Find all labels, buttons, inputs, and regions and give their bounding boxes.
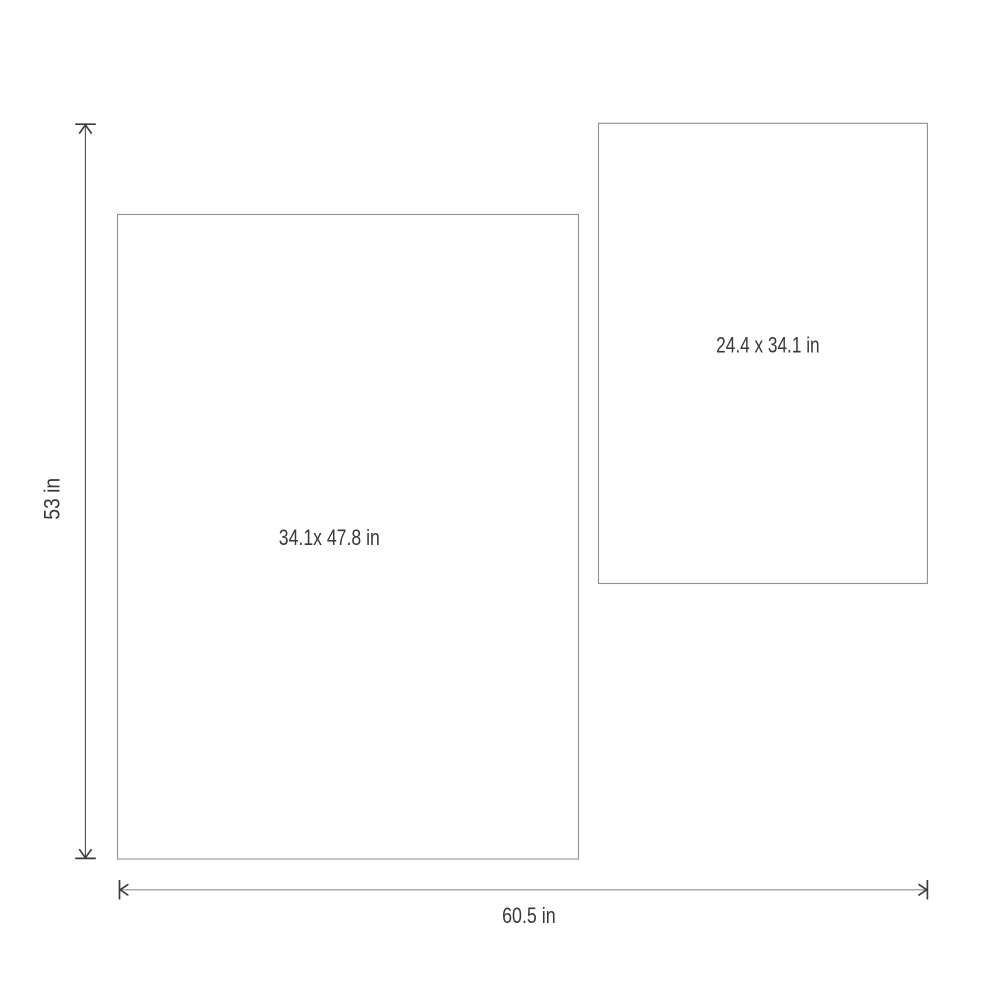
svg-text:53 in: 53 in xyxy=(39,478,64,520)
svg-text:60.5 in: 60.5 in xyxy=(502,903,556,928)
svg-text:24.4 x 34.1 in: 24.4 x 34.1 in xyxy=(716,333,820,358)
svg-text:34.1x 47.8 in: 34.1x 47.8 in xyxy=(279,525,380,550)
